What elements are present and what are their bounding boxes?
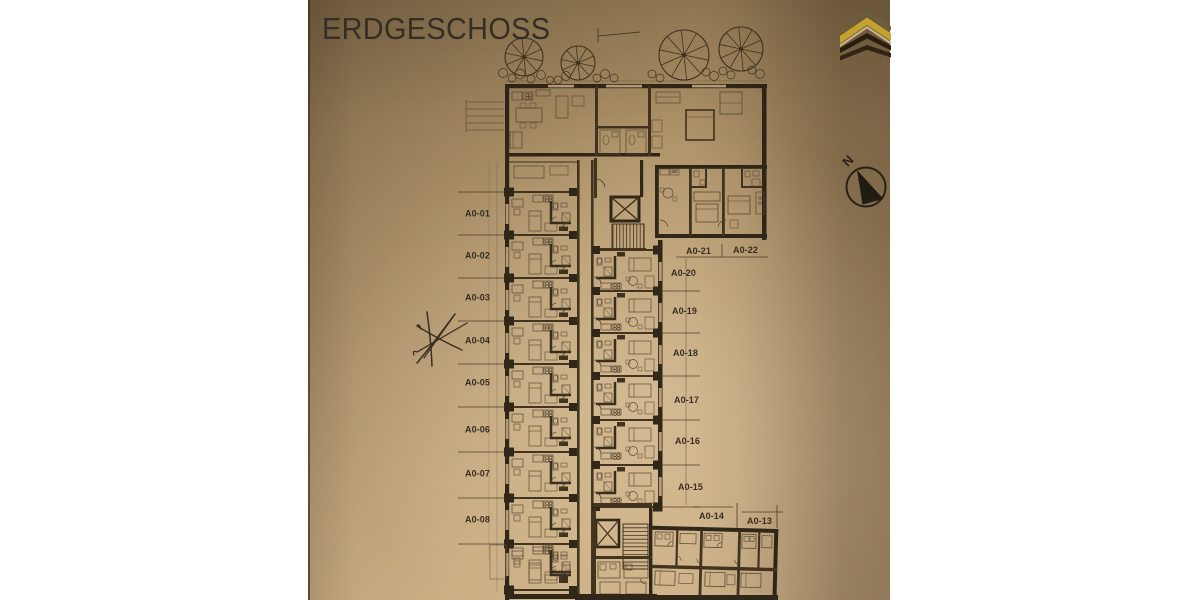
svg-text:A0-17: A0-17 [674, 395, 699, 405]
svg-text:A0-13: A0-13 [747, 516, 772, 526]
svg-text:A0-04: A0-04 [465, 336, 490, 346]
svg-text:A0-01: A0-01 [465, 209, 490, 219]
svg-text:A0-05: A0-05 [465, 378, 490, 388]
svg-text:A0-03: A0-03 [465, 293, 490, 303]
svg-text:A0-16: A0-16 [675, 436, 700, 446]
svg-text:A0-19: A0-19 [672, 306, 697, 316]
svg-text:A0-02: A0-02 [465, 251, 490, 261]
svg-text:A0-20: A0-20 [671, 268, 696, 278]
svg-text:A0-18: A0-18 [673, 348, 698, 358]
svg-text:A0-15: A0-15 [678, 482, 703, 492]
svg-text:A0-08: A0-08 [465, 515, 490, 525]
svg-text:N: N [839, 152, 856, 169]
svg-text:A0-14: A0-14 [699, 511, 724, 521]
svg-text:A0-06: A0-06 [465, 425, 490, 435]
svg-text:A0-22: A0-22 [733, 245, 758, 255]
svg-text:A0-07: A0-07 [465, 469, 490, 479]
svg-text:A0-21: A0-21 [686, 246, 711, 256]
